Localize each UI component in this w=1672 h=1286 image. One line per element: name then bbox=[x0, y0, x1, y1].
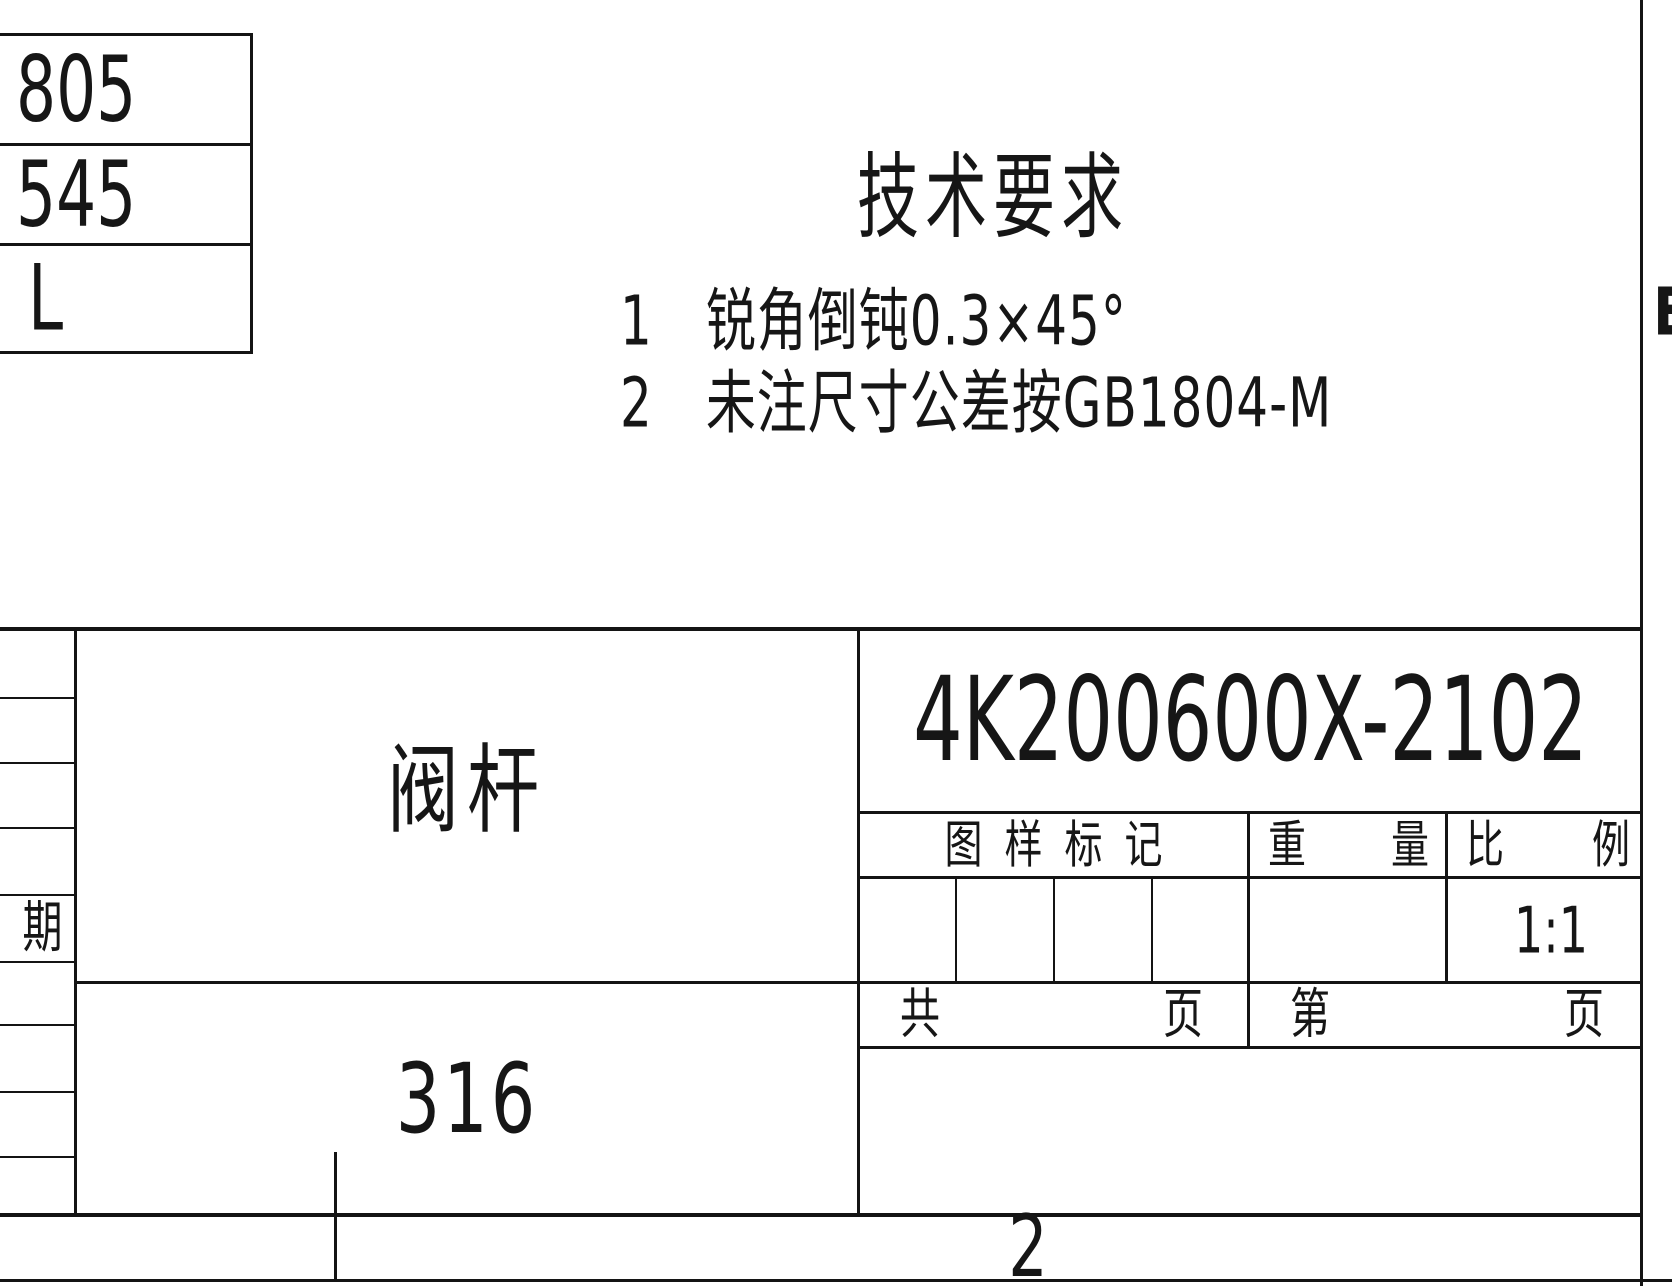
weight-header-right: 量 bbox=[1391, 819, 1429, 870]
part-name-cell: 阀杆 bbox=[77, 630, 857, 950]
date-label-cell: 期 bbox=[0, 896, 75, 961]
dim-value-L: L bbox=[28, 253, 63, 344]
strip-row-line-7 bbox=[0, 1091, 76, 1093]
scale-value-cell: 1:1 bbox=[1448, 879, 1640, 981]
item-2-number: 2 bbox=[620, 369, 652, 438]
item-1-number: 1 bbox=[620, 287, 652, 356]
material-value: 316 bbox=[396, 1050, 539, 1147]
weight-header-left: 重 bbox=[1268, 819, 1306, 870]
page-number-suffix: 页 bbox=[1564, 988, 1604, 1042]
date-label: 期 bbox=[23, 901, 63, 957]
tech-requirement-item-1: 1 锐角倒钝0.3×45° bbox=[620, 276, 1127, 366]
dim-value-805: 805 bbox=[16, 44, 136, 135]
total-pages-cell: 共 页 bbox=[860, 984, 1247, 1046]
pages-row-bottom-line bbox=[858, 1046, 1643, 1049]
drawing-number: 4K200600X-2102 bbox=[913, 662, 1588, 779]
outer-bottom-line bbox=[0, 1279, 1672, 1282]
tech-requirements-title: 技术要求 bbox=[813, 142, 1173, 254]
page-number-prefix: 第 bbox=[1290, 988, 1330, 1042]
dim-table-cell-2: 545 bbox=[16, 146, 236, 243]
mark-header: 图样标记 bbox=[944, 819, 1184, 870]
part-name: 阀杆 bbox=[387, 741, 547, 838]
mark-subcell-line-1 bbox=[955, 877, 957, 982]
strip-row-line-8 bbox=[0, 1156, 76, 1158]
dim-table-cell-1: 805 bbox=[16, 36, 236, 143]
frame-bottom-line bbox=[0, 1213, 1643, 1217]
page-number-cell: 第 页 bbox=[1250, 984, 1640, 1046]
dim-value-545: 545 bbox=[16, 149, 136, 240]
strip-row-line-2 bbox=[0, 762, 76, 764]
total-pages-suffix: 页 bbox=[1163, 988, 1203, 1042]
mark-subcell-line-3 bbox=[1151, 877, 1153, 982]
material-cell: 316 bbox=[77, 984, 857, 1213]
mark-header-cell: 图样标记 bbox=[860, 813, 1247, 876]
drawing-number-cell: 4K200600X-2102 bbox=[860, 630, 1641, 811]
zone-label-e: E bbox=[1653, 272, 1672, 352]
strip-row-line-3 bbox=[0, 827, 76, 829]
tech-requirement-item-2: 2 未注尺寸公差按GB1804-M bbox=[620, 358, 1332, 448]
scale-header-left: 比 bbox=[1466, 819, 1504, 870]
item-2-text: 未注尺寸公差按GB1804-M bbox=[706, 369, 1332, 438]
engineering-drawing-sheet: 805 545 L 技术要求 1 锐角倒钝0.3×45° 2 未注尺寸公差按GB… bbox=[0, 0, 1672, 1286]
strip-row-line-1 bbox=[0, 697, 76, 699]
total-pages-prefix: 共 bbox=[900, 988, 940, 1042]
dim-table-right-line bbox=[250, 33, 253, 354]
scale-value: 1:1 bbox=[1514, 898, 1588, 962]
dim-table-bottom-line bbox=[0, 351, 253, 354]
strip-row-line-6 bbox=[0, 1024, 76, 1026]
item-1-text: 锐角倒钝0.3×45° bbox=[706, 287, 1127, 356]
mark-subcell-line-2 bbox=[1053, 877, 1055, 982]
strip-row-line-5 bbox=[0, 961, 76, 963]
zone-label-bottom: 2 bbox=[978, 1215, 1078, 1279]
scale-header-cell: 比 例 bbox=[1448, 813, 1640, 876]
dim-table-cell-3: L bbox=[28, 246, 248, 351]
weight-header-cell: 重 量 bbox=[1250, 813, 1445, 876]
scale-header-right: 例 bbox=[1592, 819, 1630, 870]
